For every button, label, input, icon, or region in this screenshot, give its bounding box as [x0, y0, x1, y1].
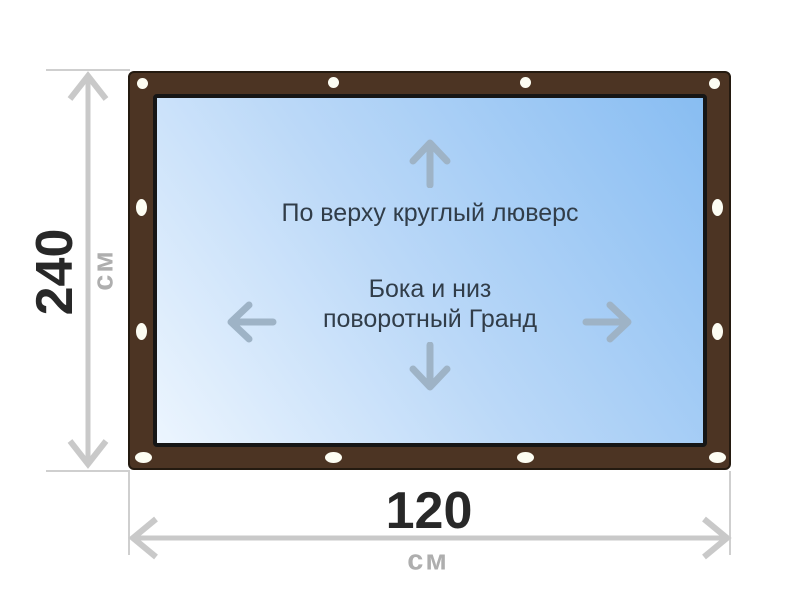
- extension-line-bottom: [46, 470, 130, 472]
- arrow-left-icon: [224, 300, 278, 344]
- width-value: 120: [386, 481, 473, 541]
- side-fastening-note: Бока и низ поворотный Гранд: [323, 274, 537, 334]
- top-fastening-note: По верху круглый люверс: [281, 198, 578, 228]
- arrow-right-icon: [581, 300, 635, 344]
- round-grommet-icon: [709, 78, 720, 89]
- oval-fastener-icon: [135, 452, 152, 463]
- oval-fastener-icon: [136, 323, 147, 340]
- round-grommet-icon: [520, 77, 531, 88]
- oval-fastener-icon: [325, 452, 342, 463]
- round-grommet-icon: [137, 78, 148, 89]
- oval-fastener-icon: [136, 199, 147, 216]
- side-fastening-note-line2: поворотный Гранд: [323, 304, 537, 334]
- arrow-up-icon: [408, 136, 452, 188]
- oval-fastener-icon: [712, 199, 723, 216]
- oval-fastener-icon: [712, 323, 723, 340]
- arrow-down-icon: [408, 342, 452, 394]
- round-grommet-icon: [328, 77, 339, 88]
- oval-fastener-icon: [709, 452, 726, 463]
- curtain-dimension-diagram: По верху круглый люверс Бока и низ повор…: [0, 0, 800, 600]
- height-value: 240: [25, 229, 85, 316]
- oval-fastener-icon: [517, 452, 534, 463]
- height-unit: см: [88, 249, 121, 291]
- width-unit: см: [407, 545, 449, 578]
- side-fastening-note-line1: Бока и низ: [323, 274, 537, 304]
